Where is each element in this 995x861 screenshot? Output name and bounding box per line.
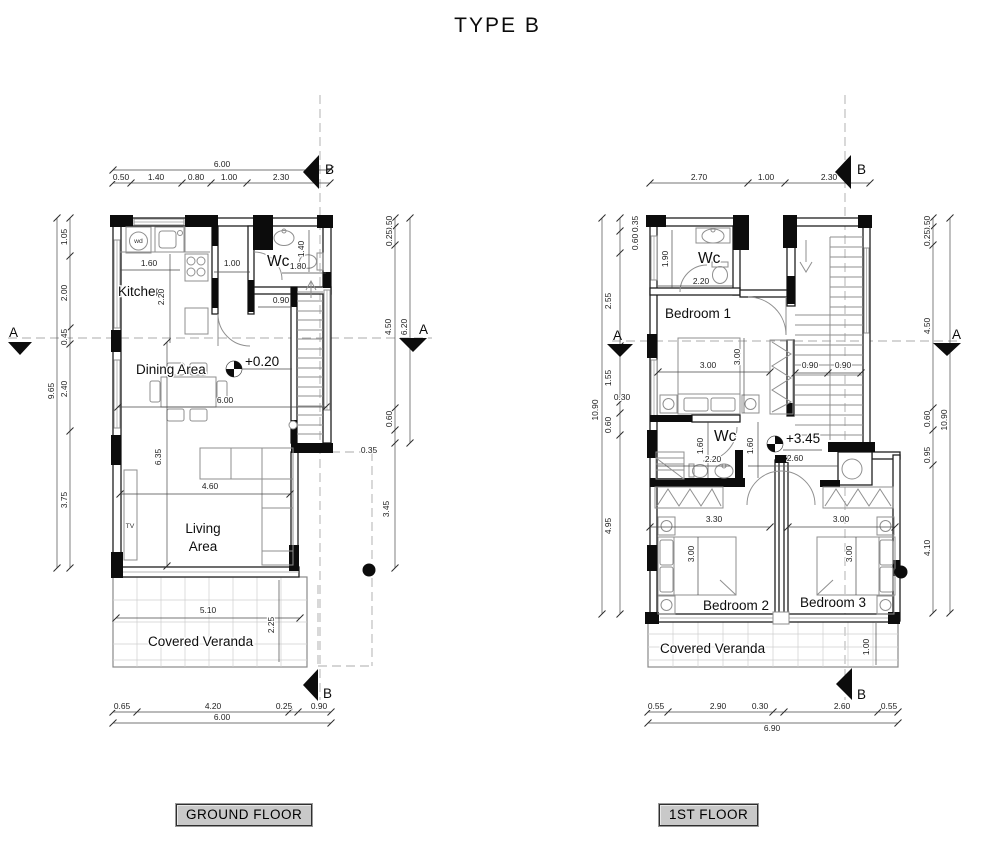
stair-treads <box>297 292 323 434</box>
dim-g-top-3: 1.00 <box>221 172 238 182</box>
dim-g-right-4: 0.60 <box>384 411 394 428</box>
dim-f-wc-top-d: 1.90 <box>660 251 670 268</box>
dim-f-bed1-d: 3.00 <box>732 349 742 366</box>
dim-g-right-3: 6.20 <box>399 319 409 336</box>
dim-f-bed1-w: 3.00 <box>700 360 717 370</box>
dim-f-left-0: 0.35 <box>630 216 640 233</box>
section-b-bottom-icon <box>303 669 318 701</box>
covered-veranda-ground <box>113 577 307 667</box>
dining-label: Dining Area <box>136 362 206 377</box>
dim-g-bottom-3: 0.90 <box>311 701 328 711</box>
section-a-right-label: A <box>419 322 428 337</box>
section-b-top-label: B <box>325 162 334 177</box>
bed1 <box>678 338 740 414</box>
section-b-bottom-label: B <box>323 686 332 701</box>
dim-f-left-4: 0.30 <box>614 392 631 402</box>
section-a-right-label-first: A <box>952 327 961 342</box>
dim-g-left-0: 1.05 <box>59 229 69 246</box>
veranda-label-ground: Covered Veranda <box>148 634 254 649</box>
dim-f-left-1: 0.60 <box>630 234 640 251</box>
section-b-top-icon <box>303 155 319 189</box>
first-floor-title: 1ST FLOOR <box>659 804 758 826</box>
section-a-left-icon-first <box>607 344 633 357</box>
bedroom1-label: Bedroom 1 <box>665 306 731 321</box>
section-a-left-label: A <box>9 325 18 340</box>
wardrobe3 <box>823 487 893 508</box>
dim-g-left-total: 9.65 <box>46 383 56 400</box>
dim-g-right-2: 4.50 <box>383 319 393 336</box>
dim-f-right-3: 0.60 <box>922 411 932 428</box>
dim-g-top-total: 6.00 <box>214 159 231 169</box>
dim-g-living-d: 6.35 <box>153 449 163 466</box>
dim-f-bottom-4: 0.55 <box>881 701 898 711</box>
dim-f-bottom-total: 6.90 <box>764 723 781 733</box>
bedroom3-label: Bedroom 3 <box>800 595 866 610</box>
dim-f-corridor-w: 2.60 <box>787 453 804 463</box>
dim-f-right-5: 4.10 <box>922 540 932 557</box>
tv-label: TV <box>126 523 135 530</box>
level-text-ground: +0.20 <box>245 354 279 369</box>
dim-g-hall-w: 1.00 <box>224 258 241 268</box>
dim-g-veranda-d: 2.25 <box>266 617 276 634</box>
living-label-line1: Living <box>185 521 220 536</box>
wc-mid-toilet <box>693 465 708 478</box>
wc-top-label: Wc <box>698 250 721 267</box>
bedroom1-door-arc <box>748 297 786 335</box>
dim-g-top-1: 1.40 <box>148 172 165 182</box>
section-a-right-icon <box>399 338 427 352</box>
stair-newel <box>289 421 297 429</box>
dim-g-wc-d: 1.40 <box>296 241 306 258</box>
veranda-tile-grid <box>113 577 307 667</box>
dim-g-wc-w: 1.80 <box>290 261 307 271</box>
dim-g-bottom-total: 6.00 <box>214 712 231 722</box>
section-b-top-label-first: B <box>857 162 866 177</box>
dim-g-kitchen-d: 2.20 <box>156 289 166 306</box>
veranda-label-first: Covered Veranda <box>660 641 766 656</box>
dim-f-wc-mid-d2: 1.60 <box>745 438 755 455</box>
wc-top-basin <box>702 229 724 243</box>
dim-f-bed2-d: 3.00 <box>686 546 696 563</box>
dim-g-top-4: 2.30 <box>273 172 290 182</box>
section-b-bottom-label-first: B <box>857 687 866 702</box>
stair-down-arrow <box>800 240 812 272</box>
dim-f-right-2: 4.50 <box>922 318 932 335</box>
dim-f-stair-left: 0.90 <box>802 360 819 370</box>
dim-f-veranda-d: 1.00 <box>861 639 871 656</box>
dim-g-left-2: 0.45 <box>59 329 69 346</box>
dim-f-right-4: 0.95 <box>922 447 932 464</box>
dim-g-right-1: 0.25 <box>384 230 394 247</box>
dim-f-left-5: 0.60 <box>603 417 613 434</box>
dim-f-wc-top-w: 2.20 <box>693 276 710 286</box>
dim-f-left-6: 4.95 <box>603 518 613 535</box>
kitchen-door-arc <box>218 314 250 346</box>
living-label-line2: Area <box>189 539 218 554</box>
section-a-left-icon <box>8 342 32 355</box>
bed2 <box>658 537 736 595</box>
bedroom-doors-arcs <box>747 471 815 505</box>
stairs-first <box>795 237 863 440</box>
dim-g-veranda-w: 5.10 <box>200 605 217 615</box>
stove <box>185 254 208 281</box>
dim-f-stair-right: 0.90 <box>835 360 852 370</box>
dim-g-stair-w: 0.90 <box>273 295 290 305</box>
washer-label: wd <box>133 238 143 245</box>
dim-f-top-2: 2.30 <box>821 172 838 182</box>
dim-f-left-3: 1.55 <box>603 370 613 387</box>
dim-g-dining-w: 6.00 <box>217 395 234 405</box>
dim-f-bottom-0: 0.55 <box>648 701 665 711</box>
dim-f-bed2-w: 3.30 <box>706 514 723 524</box>
support-column-dot-first <box>895 566 908 579</box>
section-a-left-label-first: A <box>613 328 622 343</box>
tv-unit <box>124 470 137 560</box>
dim-f-wc-mid-w: 2.20 <box>705 454 722 464</box>
dim-g-left-4: 3.75 <box>59 492 69 509</box>
dim-f-right-0: 0.50 <box>922 216 932 233</box>
dim-f-bed3-w: 3.00 <box>833 514 850 524</box>
dim-g-bottom-0: 0.65 <box>114 701 131 711</box>
dim-g-living-w: 4.60 <box>202 481 219 491</box>
niche <box>838 452 872 485</box>
ground-floor-title: GROUND FLOOR <box>176 804 312 826</box>
dim-f-bed3-d: 3.00 <box>844 546 854 563</box>
support-column-dot <box>363 564 376 577</box>
wc-top-toilet-bowl <box>713 267 728 284</box>
stair-treads-first <box>795 237 863 440</box>
first-floor-plan: A A B B Wc Bedroom 1 Wc Bedroom 2 Bedroo… <box>590 95 961 733</box>
dim-g-top-2: 0.80 <box>188 172 205 182</box>
dim-f-left-2: 2.55 <box>603 293 613 310</box>
dim-g-right-6: 3.45 <box>381 501 391 518</box>
beam-first <box>828 442 875 452</box>
wc-mid-label: Wc <box>714 428 737 445</box>
overhang-outline <box>318 452 372 666</box>
level-text-first: +3.45 <box>786 431 820 446</box>
divider-pocket <box>773 612 789 624</box>
shower <box>656 452 684 479</box>
dim-f-left-total: 10.90 <box>590 399 600 420</box>
dim-g-right-5: 0.35 <box>361 445 378 455</box>
dim-f-bottom-2: 0.30 <box>752 701 769 711</box>
wc-label-ground: Wc <box>267 253 290 270</box>
dim-g-right-0: 0.50 <box>384 216 394 233</box>
dim-g-kitchen-w: 1.60 <box>141 258 158 268</box>
dim-g-bottom-1: 4.20 <box>205 701 222 711</box>
dim-g-left-3: 2.40 <box>59 381 69 398</box>
dim-g-left-1: 2.00 <box>59 285 69 302</box>
dim-f-top-0: 2.70 <box>691 172 708 182</box>
section-b-top-icon-first <box>835 155 851 189</box>
dim-f-bottom-3: 2.60 <box>834 701 851 711</box>
dim-f-bottom-1: 2.90 <box>710 701 727 711</box>
dim-f-right-total: 10.90 <box>939 409 949 430</box>
bedroom2-label: Bedroom 2 <box>703 598 769 613</box>
dim-g-bottom-2: 0.25 <box>276 701 293 711</box>
dim-f-wc-mid-d1: 1.60 <box>695 438 705 455</box>
dim-g-top-0: 0.50 <box>113 172 130 182</box>
dim-f-top-1: 1.00 <box>758 172 775 182</box>
beam <box>291 443 333 453</box>
wardrobe2 <box>655 487 723 508</box>
columns-first <box>645 215 900 624</box>
kitchen-cabinet <box>185 308 208 334</box>
dim-f-right-1: 0.25 <box>922 230 932 247</box>
ground-floor-plan: A A B B Kitchen Dining Area Living Area … <box>8 95 432 727</box>
drawing-sheet: TYPE B <box>0 0 995 861</box>
section-a-right-icon-first <box>933 343 961 356</box>
section-b-bottom-icon-first <box>836 668 852 700</box>
floor-plan-drawing: A A B B Kitchen Dining Area Living Area … <box>0 0 995 861</box>
